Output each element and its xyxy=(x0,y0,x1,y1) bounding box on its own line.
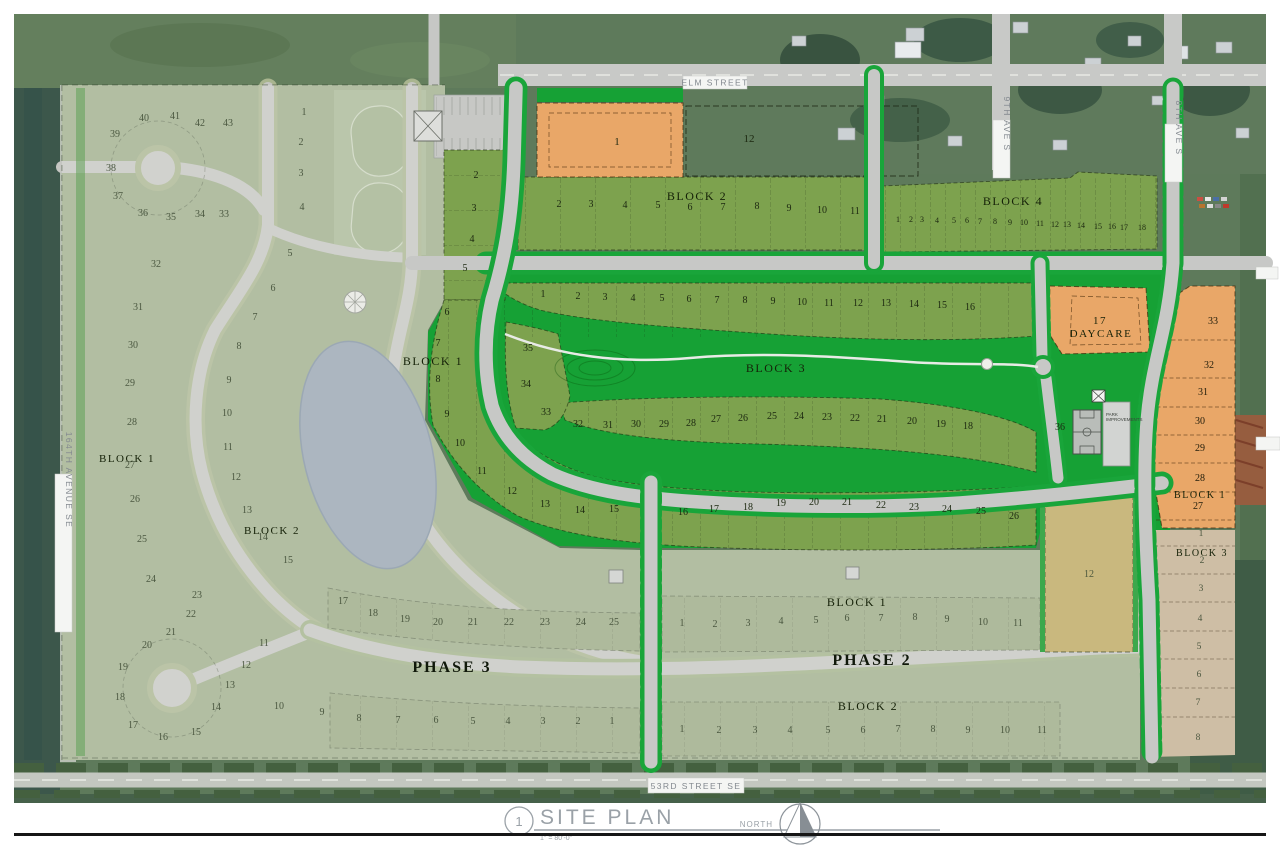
lot-number: 10 xyxy=(455,438,465,449)
lot-number: 40 xyxy=(139,113,149,124)
lot-number: 12 xyxy=(231,472,241,483)
lot-number: 23 xyxy=(822,412,832,423)
lot-number: 32 xyxy=(1204,360,1214,371)
lot-number: 36 xyxy=(1055,422,1065,433)
lot-number: 10 xyxy=(797,297,807,308)
lot-number: 12 xyxy=(1051,220,1059,229)
avenue-164-label: 164TH AVENUE SE xyxy=(64,432,74,528)
lot-number: 3 xyxy=(541,716,546,727)
lot-number: 20 xyxy=(809,497,819,508)
lot-number: 33 xyxy=(541,407,551,418)
lot-number: 1 xyxy=(541,289,546,300)
lot-number: 7 xyxy=(978,217,982,226)
lot-number: 11 xyxy=(1037,725,1047,736)
utility-pad xyxy=(609,570,623,583)
lot-number: 9 xyxy=(771,296,776,307)
lot-number: 7 xyxy=(879,613,884,624)
lot-number: 21 xyxy=(877,414,887,425)
lot-number: 16 xyxy=(1108,222,1116,231)
lot-number: 8 xyxy=(237,341,242,352)
lot-number: 1 xyxy=(680,724,685,735)
lot-group-lot-open-parcel: 12 xyxy=(744,133,755,145)
lot-number: 14 xyxy=(211,702,221,713)
lot-number: 5 xyxy=(656,200,661,211)
lot-number: 2 xyxy=(909,215,913,224)
lot-number: 8 xyxy=(913,612,918,623)
lot-number: 10 xyxy=(817,205,827,216)
lot-number: 29 xyxy=(659,419,669,430)
lot-number: 1 xyxy=(680,618,685,629)
lot-number: 42 xyxy=(195,118,205,129)
lot-number: 9 xyxy=(945,614,950,625)
block-label: BLOCK 2 xyxy=(838,699,898,713)
lot-number: 23 xyxy=(909,502,919,513)
lot-number: 1 xyxy=(896,215,900,224)
lot-number: 9 xyxy=(227,375,232,386)
block-label: BLOCK 2 xyxy=(667,189,727,203)
lot-number: 12 xyxy=(853,298,863,309)
lot-number: 6 xyxy=(271,283,276,294)
lot-number: 39 xyxy=(110,129,120,140)
lot-number: 3 xyxy=(472,203,477,214)
lot-number: 18 xyxy=(115,692,125,703)
lot-number: 36 xyxy=(138,208,148,219)
lot-number: 37 xyxy=(113,191,123,202)
lot-number: 11 xyxy=(259,638,269,649)
lot-number: 11 xyxy=(1036,219,1044,228)
lot-number: 23 xyxy=(192,590,202,601)
lot-number: 33 xyxy=(219,209,229,220)
lot-number: 9 xyxy=(1008,218,1012,227)
lot-number: 26 xyxy=(738,413,748,424)
lot-number: 16 xyxy=(678,507,688,518)
lot-number: 28 xyxy=(127,417,137,428)
lot-number: 9 xyxy=(787,203,792,214)
lot-number: 25 xyxy=(609,617,619,628)
lot-number: 23 xyxy=(540,617,550,628)
lot-number: 16 xyxy=(158,732,168,743)
site-plan-sheet: 2345678910111234567891011121314151617181… xyxy=(0,0,1280,853)
lot-number: 1 xyxy=(1199,529,1204,539)
lot-number: 7 xyxy=(715,295,720,306)
basketball-court xyxy=(1073,410,1101,454)
shelter-icon xyxy=(1092,390,1105,402)
lot-number: 11 xyxy=(477,466,487,477)
lot-number: 21 xyxy=(842,497,852,508)
lot-number: 3 xyxy=(920,215,924,224)
lot-number: 10 xyxy=(222,408,232,419)
lot-number: 2 xyxy=(576,291,581,302)
north-arrow-icon xyxy=(780,803,820,844)
daycare-label: DAYCARE xyxy=(1070,328,1133,340)
lot-number: 3 xyxy=(603,292,608,303)
lot-number: 15 xyxy=(609,504,619,515)
lot-number: 15 xyxy=(191,727,201,738)
lot-number: 6 xyxy=(965,216,969,225)
north-label: NORTH xyxy=(740,820,773,829)
lot-number: 5 xyxy=(660,293,665,304)
lot-number: 30 xyxy=(631,419,641,430)
sheet-divider-line xyxy=(14,833,1266,836)
lot-number: 22 xyxy=(504,617,514,628)
lot-number: 7 xyxy=(396,715,401,726)
lot-number: 10 xyxy=(274,701,284,712)
lot-number: 2 xyxy=(717,725,722,736)
lot-number: 24 xyxy=(576,617,586,628)
lot-number: 7 xyxy=(896,724,901,735)
lot-number: 8 xyxy=(931,724,936,735)
lot-number: 19 xyxy=(936,419,946,430)
lot-number: 17 xyxy=(338,596,348,607)
lot-number: 13 xyxy=(1063,220,1071,229)
lot-number: 7 xyxy=(253,312,258,323)
lot-number: 22 xyxy=(186,609,196,620)
lot-number: 6 xyxy=(1197,670,1202,680)
lot-number: 27 xyxy=(711,414,721,425)
block-label: BLOCK 1 xyxy=(1174,490,1226,501)
lot-group-lot-commercial: 1 xyxy=(614,136,620,148)
lot-number: 11 xyxy=(223,442,233,453)
street-53-label: 53RD STREET SE xyxy=(651,781,742,791)
lot-number: 4 xyxy=(788,725,793,736)
matchline-box xyxy=(1256,267,1278,279)
lot-number: 14 xyxy=(575,505,585,516)
park-improvements-label-2: IMPROVEMENTS xyxy=(1106,417,1143,422)
lot-number: 2 xyxy=(299,137,304,148)
lot-number: 11 xyxy=(1013,618,1023,629)
lot-number: 4 xyxy=(506,716,511,727)
lot-number: 12 xyxy=(1084,569,1094,580)
lot-number: 34 xyxy=(521,379,531,390)
lot-number: 8 xyxy=(993,217,997,226)
lot-number: 19 xyxy=(400,614,410,625)
lot-number: 43 xyxy=(223,118,233,129)
block-label: BLOCK 2 xyxy=(244,525,300,537)
lot-number: 11 xyxy=(824,298,834,309)
lot-number: 38 xyxy=(106,163,116,174)
lot-number: 12 xyxy=(507,486,517,497)
lot-number: 5 xyxy=(814,615,819,626)
lot-number: 12 xyxy=(744,133,755,145)
lot-number: 4 xyxy=(779,616,784,627)
lot-number: 24 xyxy=(146,574,156,585)
lot-number: 20 xyxy=(142,640,152,651)
lot-number: 35 xyxy=(166,212,176,223)
lot-number: 41 xyxy=(170,111,180,122)
lot-number: 4 xyxy=(300,202,305,213)
lot-number: 4 xyxy=(631,293,636,304)
lot-number: 19 xyxy=(118,662,128,673)
lot-number: 5 xyxy=(463,263,468,274)
scale-note: 1" = 80'-0" xyxy=(540,835,573,842)
lot-number: 8 xyxy=(743,295,748,306)
lot-number: 35 xyxy=(523,343,533,354)
lot-number: 26 xyxy=(1009,511,1019,522)
lot-number: 1 xyxy=(302,107,307,118)
eighth-ave-label: 8TH AVE S xyxy=(1174,101,1184,156)
lot-number: 29 xyxy=(1195,443,1205,454)
block-label: BLOCK 3 xyxy=(746,361,806,375)
lot-number: 17 xyxy=(709,504,719,515)
lot-number: 7 xyxy=(721,202,726,213)
lot-number: 21 xyxy=(468,617,478,628)
lot-number: 6 xyxy=(861,725,866,736)
ninth-ave-label: 9TH AVE S xyxy=(1002,97,1012,152)
lot-number: 15 xyxy=(283,555,293,566)
matchline-box xyxy=(1256,437,1280,450)
lot-number: 33 xyxy=(1208,316,1218,327)
lot-number: 14 xyxy=(909,299,919,310)
lot-number: 34 xyxy=(195,209,205,220)
lot-number: 7 xyxy=(436,338,441,349)
lot-number: 24 xyxy=(794,411,804,422)
lot-number: 10 xyxy=(1000,725,1010,736)
lot-number: 8 xyxy=(755,201,760,212)
lot-number: 2 xyxy=(557,199,562,210)
site-plan-map: 2345678910111234567891011121314151617181… xyxy=(0,0,1280,853)
lot-number: 22 xyxy=(876,500,886,511)
lot-number: 7 xyxy=(1196,698,1201,708)
lot-number: 14 xyxy=(1077,221,1085,230)
title-block: 1 SITE PLAN 1" = 80'-0" NORTH xyxy=(14,803,1266,844)
lot-number: 13 xyxy=(540,499,550,510)
lot-number: 26 xyxy=(130,494,140,505)
lot-number: 10 xyxy=(1020,218,1028,227)
lot-number: 29 xyxy=(125,378,135,389)
lot-number: 17 xyxy=(128,720,138,731)
lot-number: 13 xyxy=(242,505,252,516)
sheet-title: SITE PLAN xyxy=(540,806,674,829)
lot-number: 18 xyxy=(368,608,378,619)
lot-number: 30 xyxy=(128,340,138,351)
lot-group-lot-school-site: 12 xyxy=(1084,569,1094,580)
detail-number: 1 xyxy=(515,814,522,829)
lot-number: 6 xyxy=(445,307,450,318)
block-label: BLOCK 1 xyxy=(99,453,155,465)
lot-number: 6 xyxy=(845,613,850,624)
lot-number: 15 xyxy=(937,300,947,311)
lot-number: 18 xyxy=(1138,223,1146,232)
lot-number: 1 xyxy=(614,136,620,148)
lot-number: 3 xyxy=(753,725,758,736)
lot-number: 5 xyxy=(826,725,831,736)
lot-number: 3 xyxy=(589,199,594,210)
lot-number: 18 xyxy=(963,421,973,432)
lot-number: 8 xyxy=(357,713,362,724)
lot-number: 13 xyxy=(881,298,891,309)
lot-number: 32 xyxy=(151,259,161,270)
lot-number: 5 xyxy=(1197,642,1202,652)
lot-number: 12 xyxy=(241,660,251,671)
lot-number: 17 xyxy=(1120,223,1128,232)
commercial-lot xyxy=(537,103,683,177)
lot-number: 28 xyxy=(1195,473,1205,484)
lot-number: 1 xyxy=(610,716,615,727)
lot-number: 32 xyxy=(573,419,583,430)
lot-number: 18 xyxy=(743,502,753,513)
lot-number: 15 xyxy=(1094,222,1102,231)
elm-street-label: ELM STREET xyxy=(681,78,748,88)
block-label: BLOCK 1 xyxy=(827,595,887,609)
lot-number: 4 xyxy=(1198,614,1203,624)
lot-number: 31 xyxy=(603,420,613,431)
trail-node xyxy=(982,359,993,370)
lot-number: 6 xyxy=(687,294,692,305)
phase3-label: PHASE 3 xyxy=(412,659,491,676)
lot-number: 16 xyxy=(965,302,975,313)
block-label: BLOCK 3 xyxy=(1176,548,1228,559)
lot-number: 4 xyxy=(470,234,475,245)
lot-number: 28 xyxy=(686,418,696,429)
lot-number: 19 xyxy=(776,498,786,509)
block-label: BLOCK 4 xyxy=(983,194,1043,208)
lot-number: 22 xyxy=(850,413,860,424)
lot-number: 8 xyxy=(1196,733,1201,743)
lot-number: 8 xyxy=(436,374,441,385)
lot-number: 4 xyxy=(623,200,628,211)
lot-number: 2 xyxy=(713,619,718,630)
lot-number: 9 xyxy=(320,707,325,718)
lot-number: 25 xyxy=(767,411,777,422)
lot-number: 9 xyxy=(445,409,450,420)
lot-number: 20 xyxy=(907,416,917,427)
phase2-label: PHASE 2 xyxy=(832,652,911,669)
daycare-number: 17 xyxy=(1093,315,1107,327)
lot-number: 9 xyxy=(966,725,971,736)
utility-pad xyxy=(846,567,859,579)
lot-number: 24 xyxy=(942,504,952,515)
lot-number: 11 xyxy=(850,206,860,217)
lot-number: 3 xyxy=(299,168,304,179)
lot-number: 5 xyxy=(952,216,956,225)
lot-number: 31 xyxy=(133,302,143,313)
lot-number: 13 xyxy=(225,680,235,691)
lot-number: 6 xyxy=(688,202,693,213)
lot-number: 25 xyxy=(976,506,986,517)
lot-number: 5 xyxy=(288,248,293,259)
block-label: BLOCK 1 xyxy=(403,354,463,368)
lot-number: 31 xyxy=(1198,387,1208,398)
lot-number: 30 xyxy=(1195,416,1205,427)
lot-number: 27 xyxy=(1193,501,1203,512)
lot-number: 4 xyxy=(935,216,939,225)
lot-number: 21 xyxy=(166,627,176,638)
lot-number: 3 xyxy=(1199,584,1204,594)
lot-number: 10 xyxy=(978,617,988,628)
lot-number: 2 xyxy=(576,716,581,727)
lot-number: 6 xyxy=(434,715,439,726)
lot-number: 2 xyxy=(474,170,479,181)
lot-group-lot-park: 36 xyxy=(1055,422,1065,433)
pavilion-icon xyxy=(414,111,442,141)
lot-number: 25 xyxy=(137,534,147,545)
lot-number: 5 xyxy=(471,716,476,727)
lot-number: 3 xyxy=(746,618,751,629)
lot-number: 20 xyxy=(433,617,443,628)
